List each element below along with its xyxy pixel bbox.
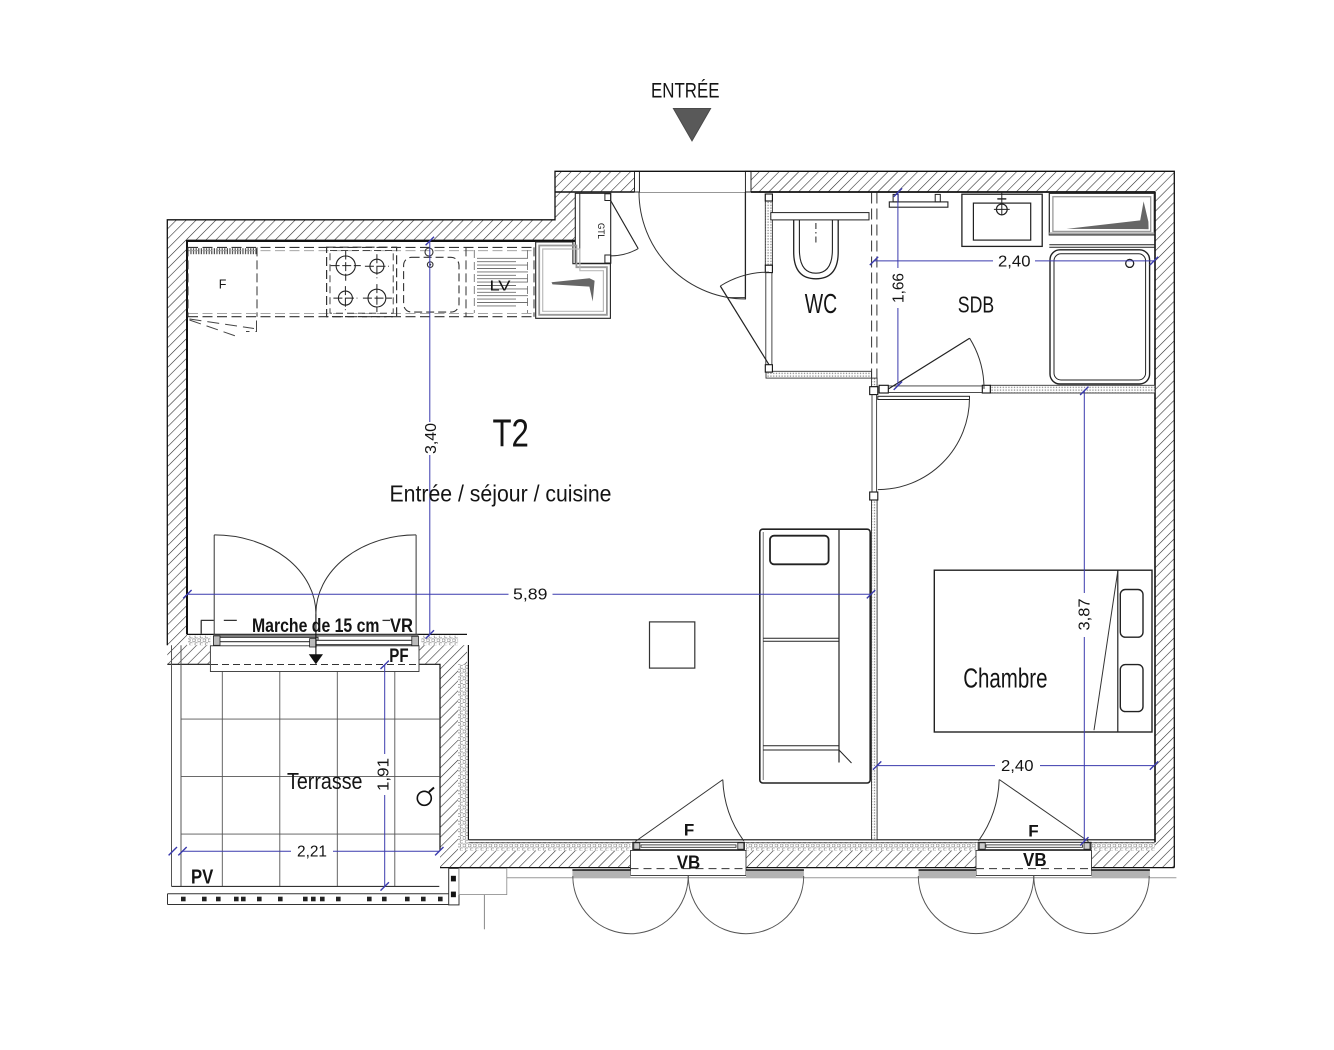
svg-text:SDB: SDB xyxy=(958,292,994,318)
svg-text:VB: VB xyxy=(677,852,701,872)
svg-text:Chambre: Chambre xyxy=(963,662,1047,693)
svg-text:VR: VR xyxy=(390,615,413,637)
svg-text:F: F xyxy=(219,277,227,291)
svg-text:PF: PF xyxy=(389,645,408,667)
svg-text:Terrasse: Terrasse xyxy=(287,768,363,794)
svg-text:3,87: 3,87 xyxy=(1076,598,1093,630)
svg-text:VB: VB xyxy=(1023,850,1047,870)
svg-text:5,89: 5,89 xyxy=(513,587,548,604)
svg-text:WC: WC xyxy=(805,288,837,319)
svg-text:ENTRÉE: ENTRÉE xyxy=(651,80,720,103)
svg-text:1,91: 1,91 xyxy=(376,758,393,791)
svg-text:F: F xyxy=(1028,821,1038,840)
svg-text:2,40: 2,40 xyxy=(1001,758,1034,775)
svg-text:T2: T2 xyxy=(493,412,529,455)
svg-text:2,40: 2,40 xyxy=(998,253,1031,270)
svg-text:2,21: 2,21 xyxy=(297,844,327,861)
svg-text:GTL: GTL xyxy=(595,223,606,239)
svg-text:LV: LV xyxy=(490,279,511,295)
svg-text:Entrée / séjour / cuisine: Entrée / séjour / cuisine xyxy=(390,481,612,507)
svg-text:Marche de 15 cm: Marche de 15 cm xyxy=(252,615,380,637)
svg-text:F: F xyxy=(684,820,694,839)
svg-text:1,66: 1,66 xyxy=(890,273,907,303)
svg-text:3,40: 3,40 xyxy=(423,423,440,454)
svg-text:PV: PV xyxy=(191,866,214,888)
